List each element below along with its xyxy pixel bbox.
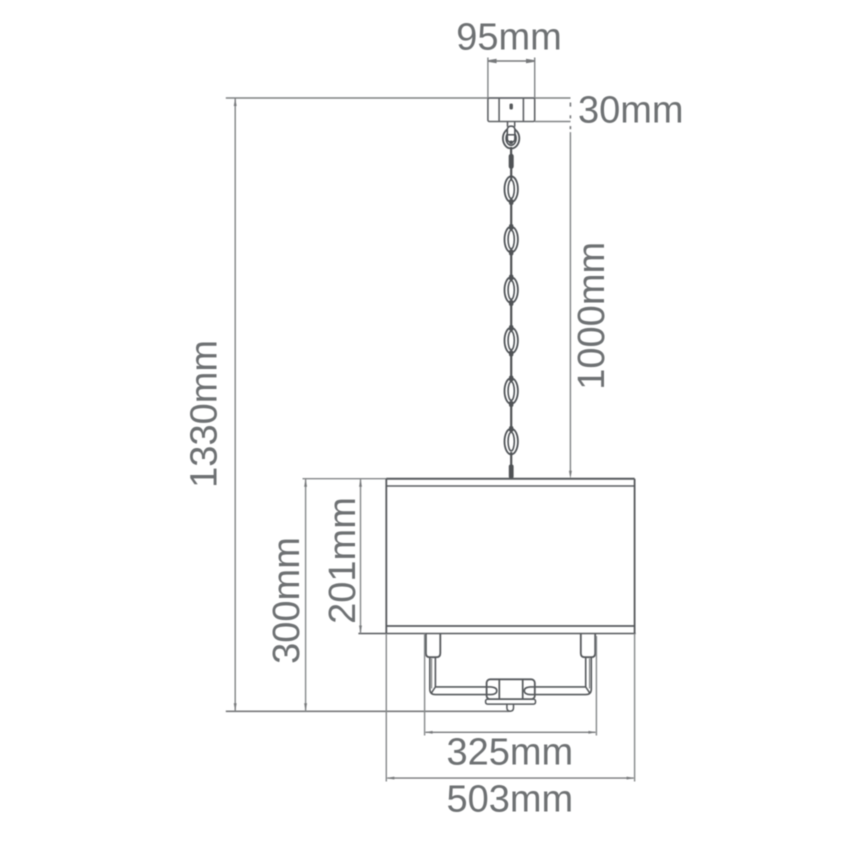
svg-text:95mm: 95mm <box>456 17 562 59</box>
svg-text:30mm: 30mm <box>578 90 684 132</box>
svg-text:503mm: 503mm <box>446 778 573 820</box>
svg-text:325mm: 325mm <box>446 732 573 774</box>
svg-text:201mm: 201mm <box>322 497 364 624</box>
svg-text:1000mm: 1000mm <box>571 242 613 390</box>
svg-text:300mm: 300mm <box>266 537 308 664</box>
svg-text:1330mm: 1330mm <box>183 340 225 488</box>
